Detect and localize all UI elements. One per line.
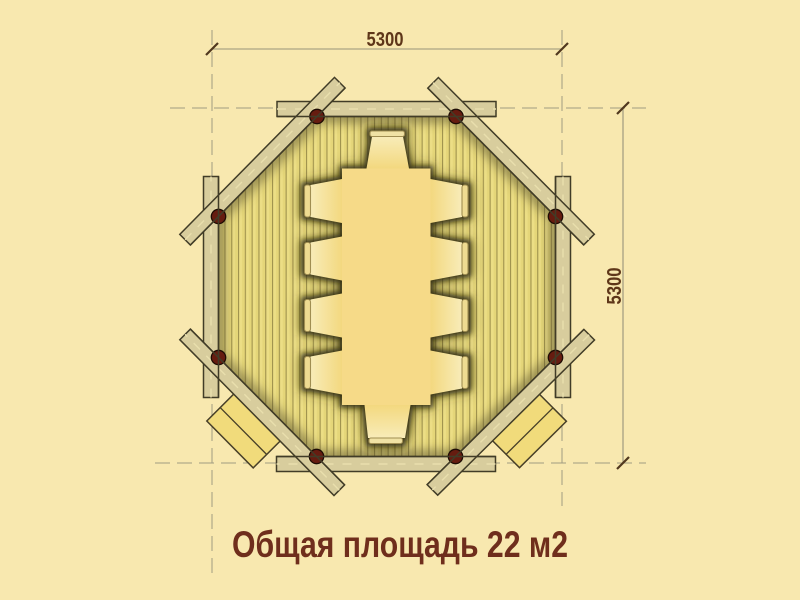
svg-text:5300: 5300 <box>604 268 626 305</box>
svg-text:Общая площадь 22 м2: Общая площадь 22 м2 <box>232 524 568 565</box>
svg-text:5300: 5300 <box>367 29 404 51</box>
